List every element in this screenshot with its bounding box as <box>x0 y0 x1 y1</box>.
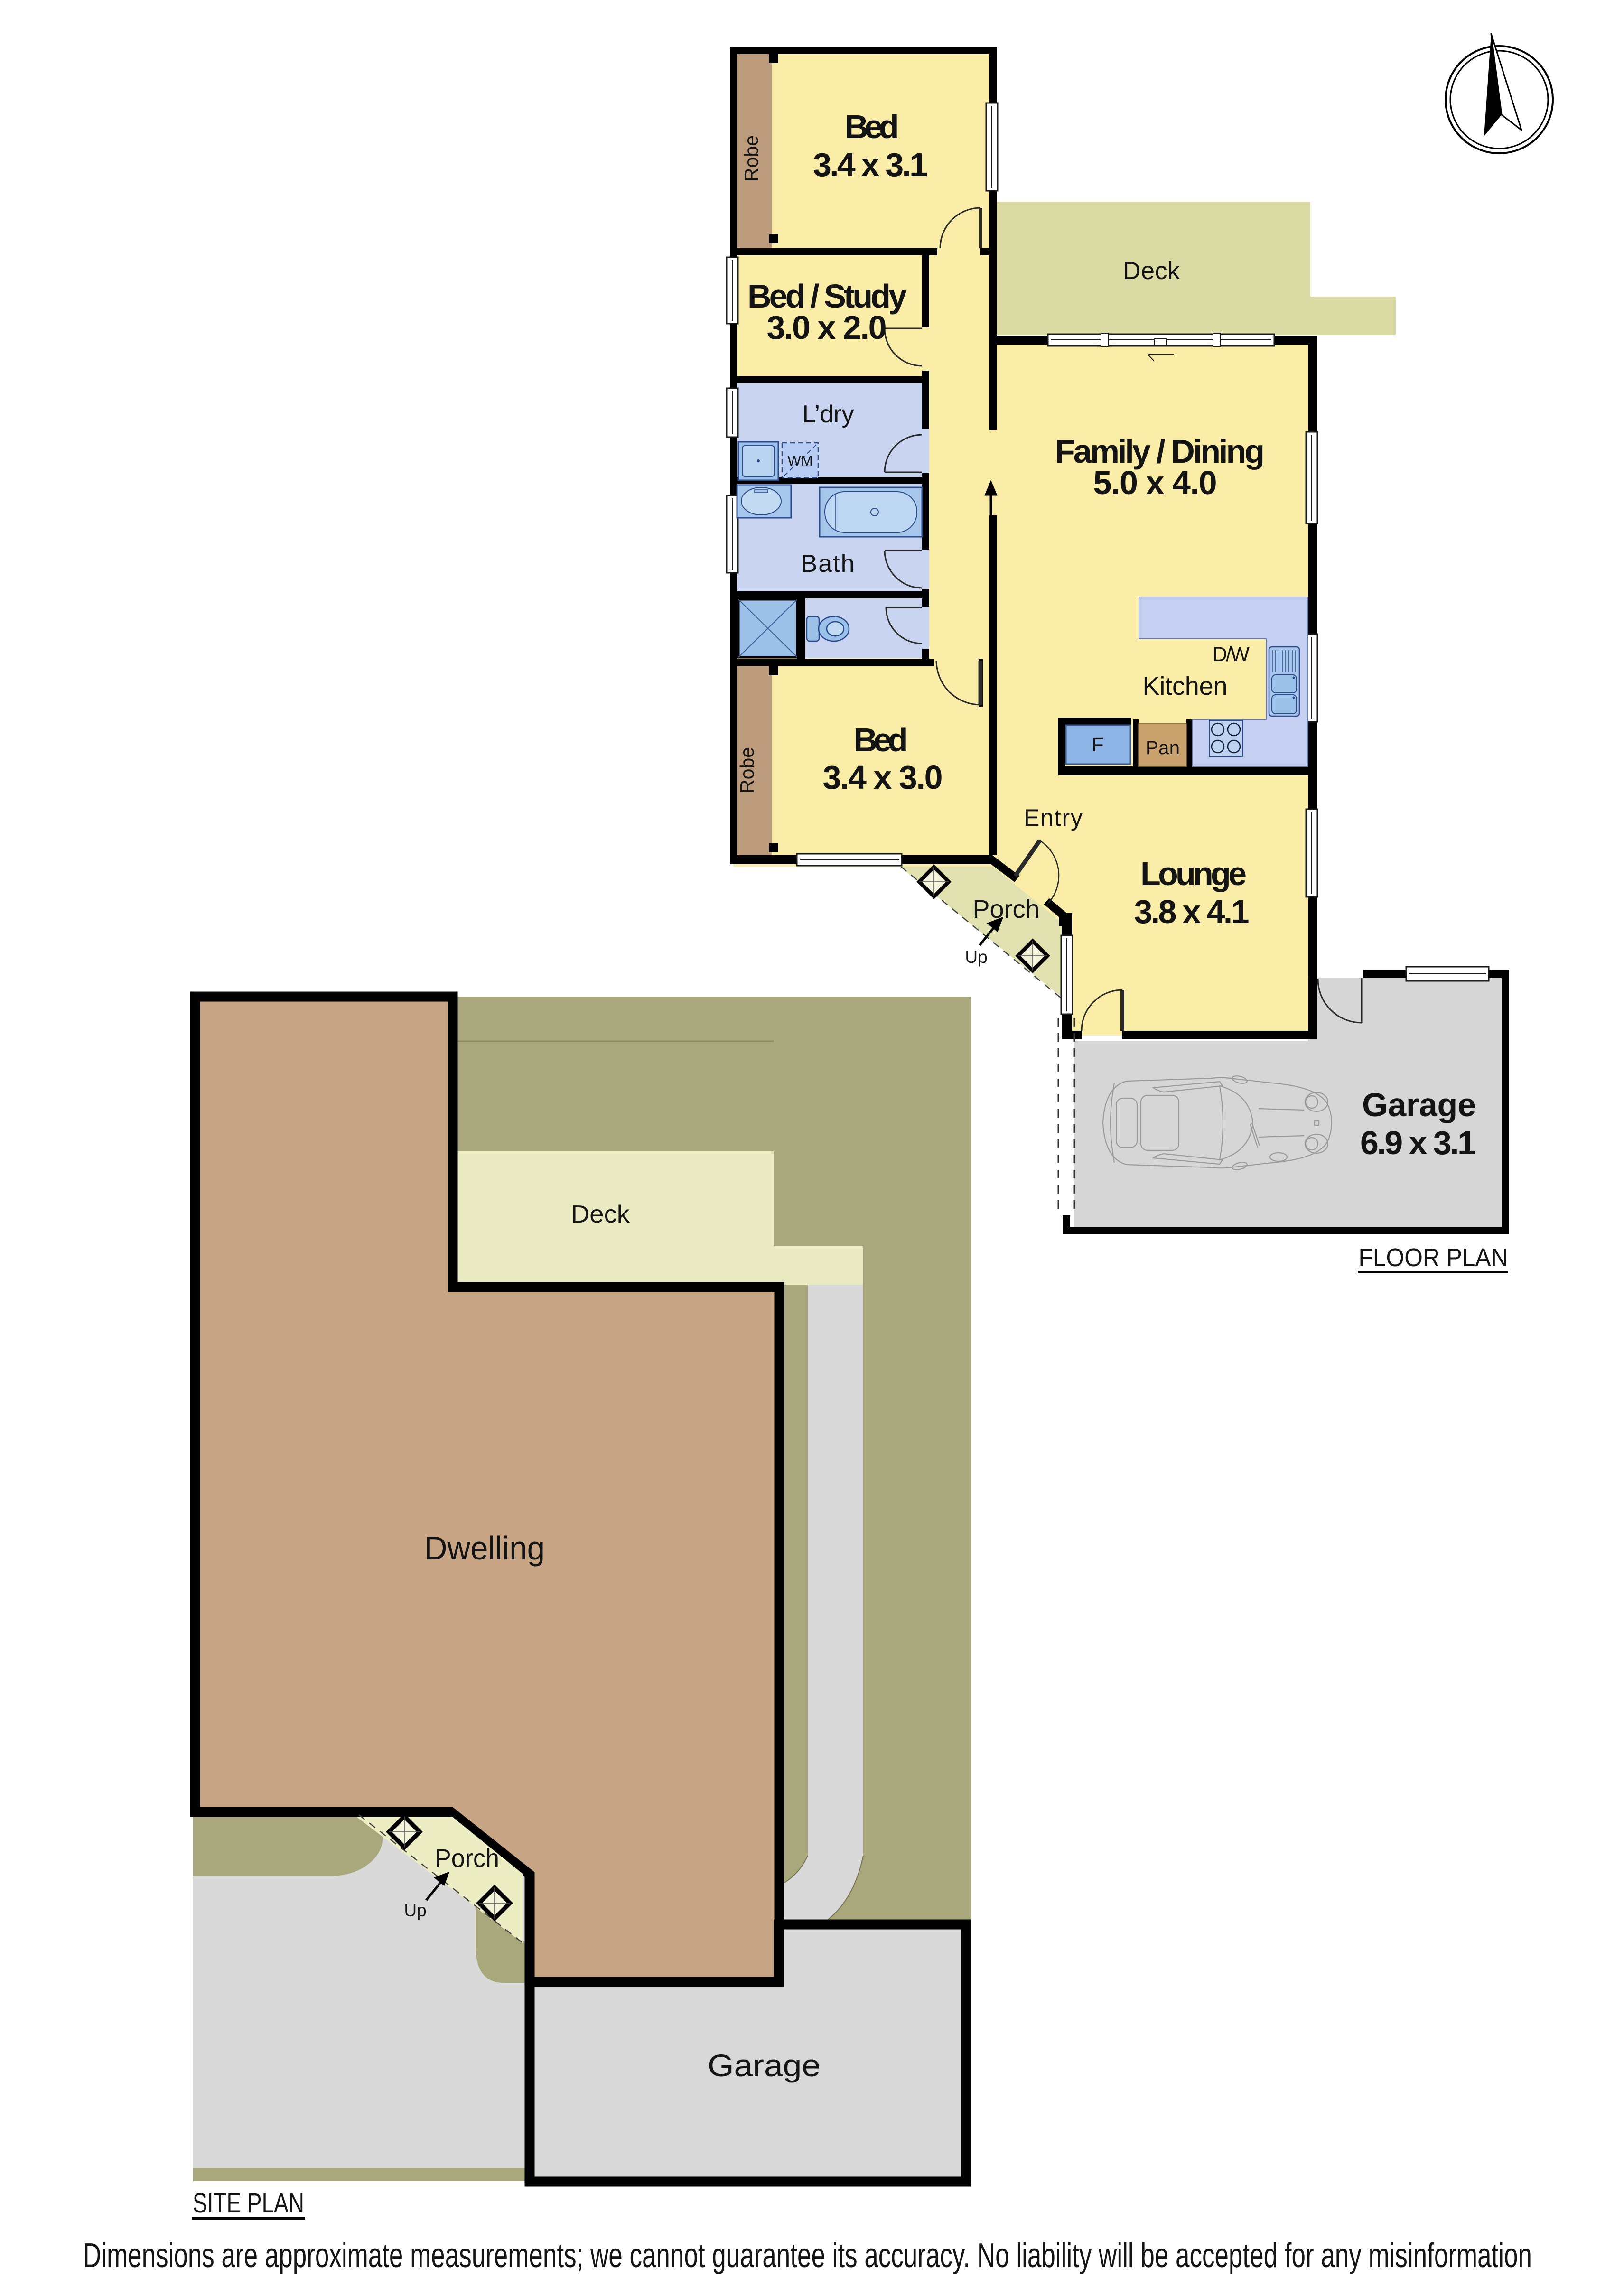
svg-text:D/W: D/W <box>1213 643 1250 666</box>
svg-text:Garage: Garage <box>1362 1086 1476 1123</box>
svg-text:Deck: Deck <box>571 1201 630 1228</box>
svg-text:3.0 x 2.0: 3.0 x 2.0 <box>767 309 887 346</box>
svg-text:Up: Up <box>404 1901 426 1920</box>
svg-text:Bath: Bath <box>801 550 855 578</box>
svg-text:Bed: Bed <box>845 108 899 145</box>
svg-text:Porch: Porch <box>973 895 1040 924</box>
svg-text:Entry: Entry <box>1024 804 1083 831</box>
svg-text:5.0 x 4.0: 5.0 x 4.0 <box>1093 464 1217 501</box>
svg-text:Robe: Robe <box>736 747 758 793</box>
svg-text:L’dry: L’dry <box>803 401 854 428</box>
svg-text:Bed: Bed <box>854 721 908 758</box>
svg-text:Pan: Pan <box>1146 737 1180 758</box>
svg-text:Garage: Garage <box>708 2048 821 2083</box>
svg-text:3.8 x 4.1: 3.8 x 4.1 <box>1134 893 1250 930</box>
svg-text:Kitchen: Kitchen <box>1143 672 1228 700</box>
svg-text:Dwelling: Dwelling <box>424 1530 545 1567</box>
svg-text:Up: Up <box>965 947 987 967</box>
svg-text:Deck: Deck <box>1123 257 1180 285</box>
svg-text:6.9 x 3.1: 6.9 x 3.1 <box>1360 1124 1476 1161</box>
svg-text:Lounge: Lounge <box>1140 855 1247 892</box>
svg-text:Dimensions are approximate mea: Dimensions are approximate measurements;… <box>83 2237 1532 2275</box>
svg-text:WM: WM <box>787 453 812 469</box>
svg-text:3.4 x 3.1: 3.4 x 3.1 <box>813 146 928 183</box>
svg-text:F: F <box>1092 734 1103 756</box>
svg-text:SITE PLAN: SITE PLAN <box>193 2188 304 2219</box>
svg-text:Robe: Robe <box>740 135 762 182</box>
svg-text:Porch: Porch <box>435 1844 499 1873</box>
svg-text:3.4 x 3.0: 3.4 x 3.0 <box>823 759 943 796</box>
svg-text:FLOOR PLAN: FLOOR PLAN <box>1359 1243 1508 1272</box>
